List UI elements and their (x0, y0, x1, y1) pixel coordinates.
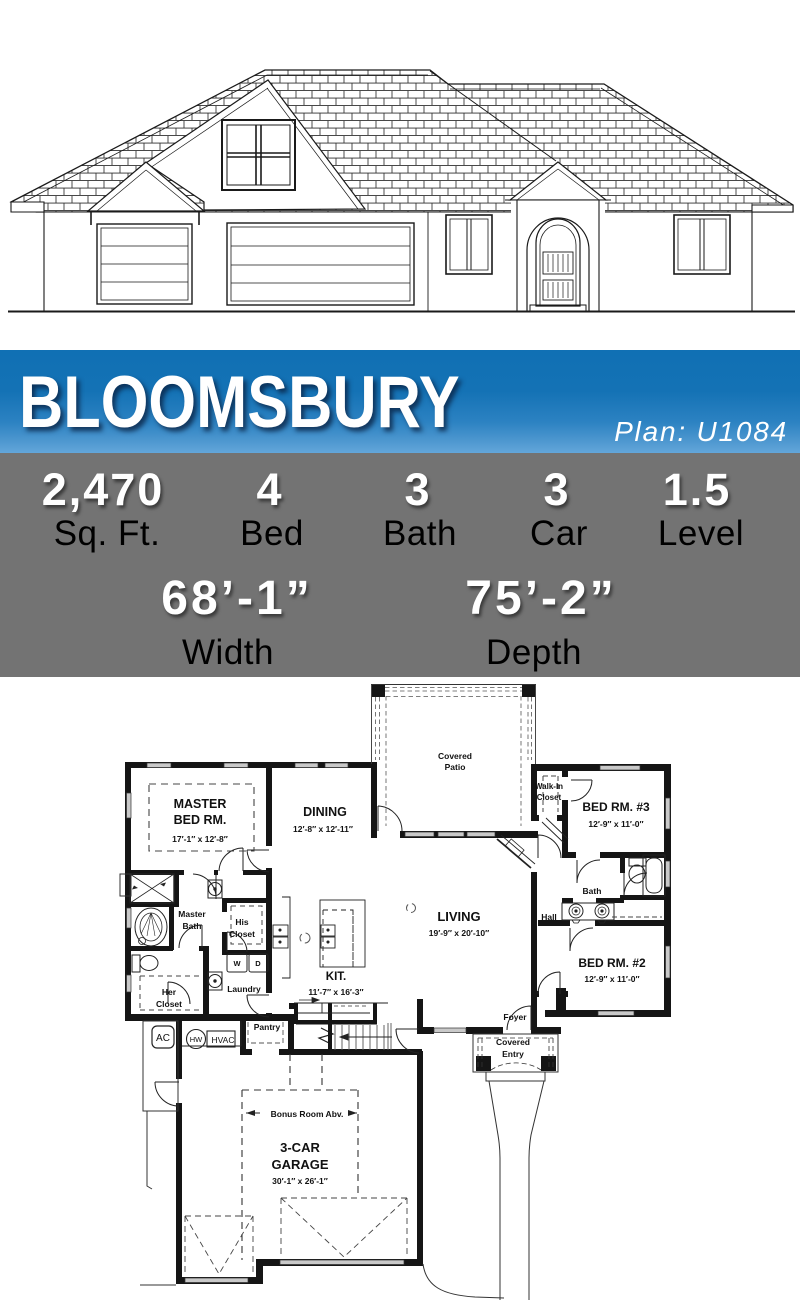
svg-text:Bath: Bath (583, 886, 602, 896)
svg-text:12′-9″ x 11′-0″: 12′-9″ x 11′-0″ (584, 974, 639, 984)
svg-text:Her: Her (162, 987, 177, 997)
svg-text:MASTER: MASTER (174, 797, 227, 811)
svg-text:Closet: Closet (537, 793, 562, 802)
svg-text:12′-9″ x 11′-0″: 12′-9″ x 11′-0″ (588, 819, 643, 829)
svg-text:Hall: Hall (541, 912, 557, 922)
svg-text:Covered: Covered (438, 751, 472, 761)
svg-text:Covered: Covered (496, 1037, 530, 1047)
svg-text:Bath: Bath (183, 921, 202, 931)
svg-text:Entry: Entry (502, 1049, 524, 1059)
svg-text:Master: Master (178, 909, 206, 919)
svg-text:Walk-In: Walk-In (535, 782, 563, 791)
svg-text:Patio: Patio (445, 762, 466, 772)
svg-text:W: W (233, 959, 241, 968)
svg-text:BED RM. #2: BED RM. #2 (578, 956, 646, 970)
svg-text:12′-8″ x 12′-11″: 12′-8″ x 12′-11″ (293, 824, 353, 834)
svg-text:GARAGE: GARAGE (271, 1157, 328, 1172)
svg-text:Bonus Room Abv.: Bonus Room Abv. (271, 1109, 344, 1119)
svg-text:HVAC: HVAC (212, 1035, 235, 1045)
svg-text:KIT.: KIT. (326, 971, 346, 983)
svg-text:Closet: Closet (229, 929, 255, 939)
svg-text:Pantry: Pantry (254, 1022, 281, 1032)
svg-text:D: D (255, 959, 261, 968)
svg-text:30′-1″ x 26′-1″: 30′-1″ x 26′-1″ (272, 1176, 328, 1186)
svg-text:3-CAR: 3-CAR (280, 1140, 320, 1155)
svg-text:AC: AC (156, 1033, 170, 1044)
svg-text:Laundry: Laundry (227, 984, 261, 994)
svg-text:Closet: Closet (156, 999, 182, 1009)
svg-text:His: His (235, 917, 249, 927)
svg-text:11′-7″ x 16′-3″: 11′-7″ x 16′-3″ (308, 987, 363, 997)
svg-text:HW: HW (190, 1035, 203, 1044)
svg-text:BED RM. #3: BED RM. #3 (582, 800, 650, 814)
svg-text:DINING: DINING (303, 805, 347, 819)
svg-text:BED RM.: BED RM. (174, 813, 227, 827)
svg-text:17′-1″ x 12′-8″: 17′-1″ x 12′-8″ (172, 834, 228, 844)
svg-text:19′-9″ x 20′-10″: 19′-9″ x 20′-10″ (429, 928, 489, 938)
svg-text:LIVING: LIVING (437, 909, 480, 924)
svg-text:Foyer: Foyer (503, 1012, 527, 1022)
